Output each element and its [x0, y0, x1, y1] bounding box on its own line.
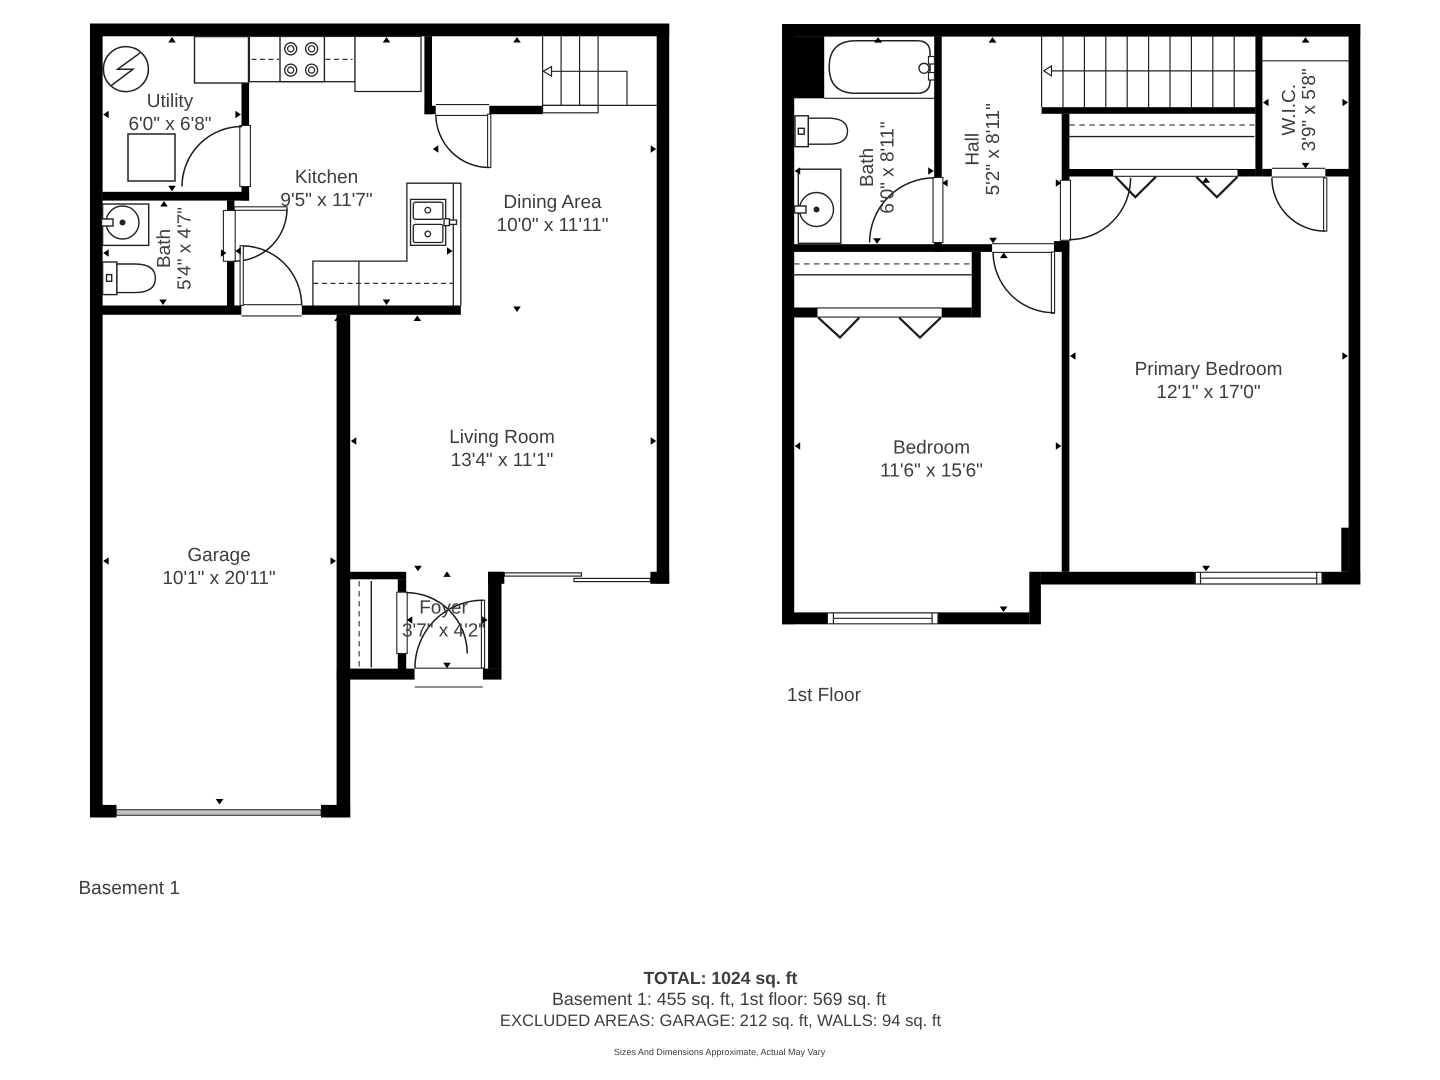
- svg-text:Sizes And Dimensions Approxima: Sizes And Dimensions Approximate, Actual…: [614, 1047, 826, 1057]
- svg-text:Primary Bedroom: Primary Bedroom: [1135, 359, 1283, 380]
- svg-text:12'1" x 17'0": 12'1" x 17'0": [1156, 382, 1260, 403]
- svg-text:Basement 1: 455 sq. ft, 1st fl: Basement 1: 455 sq. ft, 1st floor: 569 s…: [552, 989, 886, 1009]
- svg-text:Living Room: Living Room: [449, 427, 555, 448]
- svg-text:6'0" x 6'8": 6'0" x 6'8": [128, 114, 211, 135]
- svg-text:13'4" x 11'1": 13'4" x 11'1": [451, 450, 554, 471]
- svg-text:W.I.C.: W.I.C.: [1279, 84, 1300, 136]
- svg-text:3'7" x 4'2": 3'7" x 4'2": [402, 621, 485, 642]
- svg-text:1st Floor: 1st Floor: [787, 685, 862, 706]
- svg-text:TOTAL: 1024 sq. ft: TOTAL: 1024 sq. ft: [644, 968, 798, 988]
- svg-text:Kitchen: Kitchen: [295, 167, 358, 188]
- svg-text:5'4" x 4'7": 5'4" x 4'7": [175, 207, 196, 290]
- svg-text:3'9" x 5'8": 3'9" x 5'8": [1299, 68, 1320, 151]
- svg-text:Foyer: Foyer: [419, 598, 468, 619]
- svg-text:Bedroom: Bedroom: [893, 438, 970, 459]
- svg-text:9'5" x 11'7": 9'5" x 11'7": [280, 190, 372, 211]
- svg-text:Bath: Bath: [857, 148, 878, 187]
- svg-text:Garage: Garage: [187, 545, 250, 566]
- svg-text:EXCLUDED AREAS: GARAGE: 212 sq: EXCLUDED AREAS: GARAGE: 212 sq. ft, WALL…: [500, 1011, 942, 1030]
- svg-text:6'0" x 8'11": 6'0" x 8'11": [878, 121, 899, 213]
- svg-text:Bath: Bath: [154, 229, 175, 268]
- svg-text:11'6" x 15'6": 11'6" x 15'6": [880, 461, 983, 482]
- svg-text:Dining Area: Dining Area: [503, 192, 602, 213]
- svg-text:Hall: Hall: [962, 133, 983, 166]
- svg-text:Basement 1: Basement 1: [79, 878, 180, 899]
- svg-text:5'2" x 8'11": 5'2" x 8'11": [983, 103, 1004, 195]
- svg-text:10'1" x 20'11": 10'1" x 20'11": [162, 568, 275, 589]
- svg-text:10'0" x 11'11": 10'0" x 11'11": [497, 215, 609, 236]
- svg-text:Utility: Utility: [147, 91, 194, 112]
